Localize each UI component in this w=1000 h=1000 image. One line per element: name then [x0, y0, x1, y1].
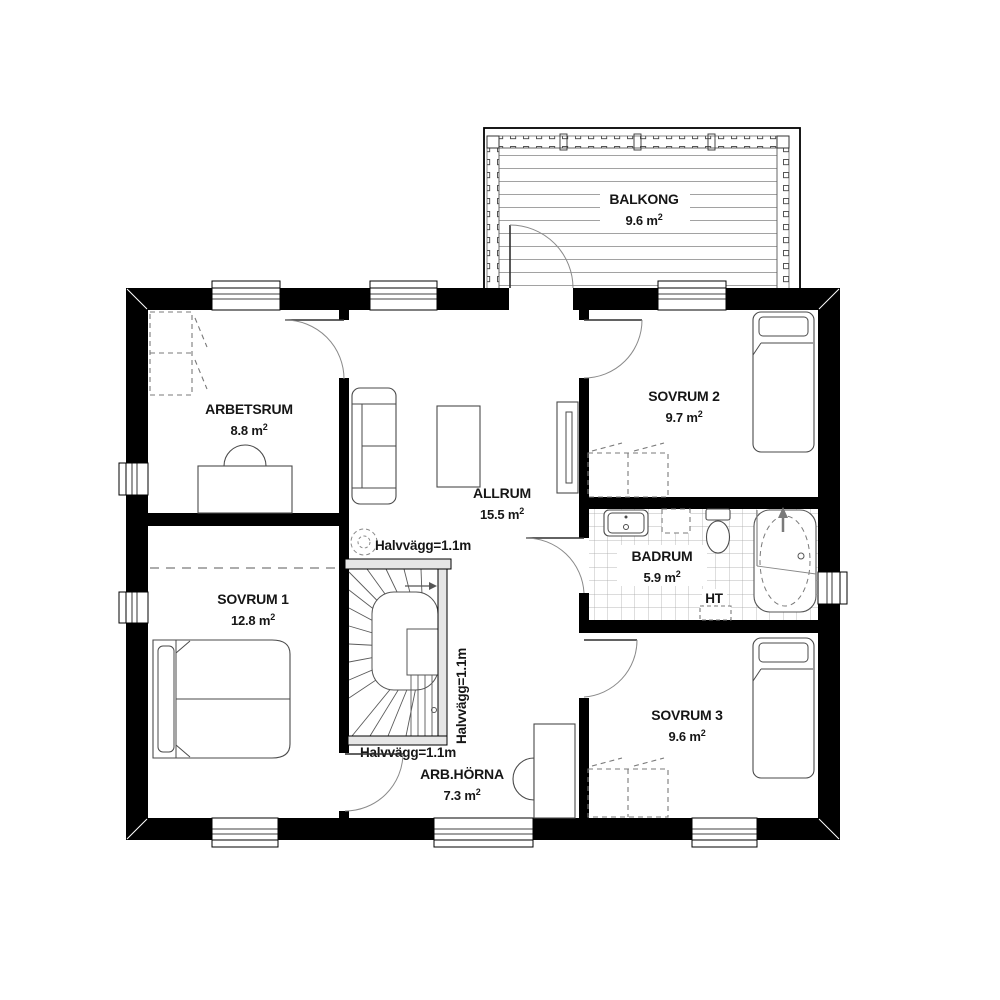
- room-label-allrum: ALLRUM: [473, 485, 531, 501]
- door-sovrum1: [345, 754, 403, 811]
- balcony-railing-right: [777, 148, 789, 290]
- door-badrum: [526, 538, 584, 593]
- toilet: [706, 509, 730, 553]
- tv-bench: [557, 402, 578, 493]
- area-label-sovrum2: 9.7 m2: [665, 409, 702, 425]
- area-label-sovrum1: 12.8 m2: [231, 612, 275, 628]
- wall-arbetsrum-allrum: [339, 378, 349, 513]
- exterior-wall-right: [818, 288, 840, 840]
- stairs: Halvvägg=1.1m Halvvägg=1.1m Halvvägg=1.1…: [345, 529, 471, 760]
- door-sovrum3: [584, 640, 637, 697]
- area-label-balkong: 9.6 m2: [625, 212, 662, 228]
- window-sovrum3-bottom: [692, 818, 757, 847]
- area-label-badrum: 5.9 m2: [643, 569, 680, 585]
- stair-landing: [407, 629, 438, 675]
- wall-stub: [339, 310, 349, 320]
- window-sovrum2-top: [658, 281, 726, 310]
- area-label-arbhorna: 7.3 m2: [443, 787, 480, 803]
- half-wall-bottom: [348, 736, 447, 745]
- arbetsrum: ARBETSRUM 8.8 m2: [150, 312, 293, 513]
- door-arbetsrum: [285, 320, 344, 379]
- desk-arbetsrum: [198, 445, 292, 513]
- wall-stub: [579, 310, 589, 320]
- room-label-badrum: BADRUM: [631, 548, 692, 564]
- washing-machine: [662, 509, 690, 533]
- bathtub: [754, 507, 816, 612]
- floor-plan-drawing: BALKONG 9.6 m2: [0, 0, 1000, 1000]
- window-sovrum1-left: [119, 592, 148, 623]
- wardrobe-sovrum3: [588, 758, 668, 817]
- allrum: ALLRUM 15.5 m2: [352, 388, 578, 522]
- balcony-railing-top: [499, 136, 777, 148]
- wall-badrum-sovrum3: [579, 620, 818, 633]
- sink: [604, 510, 648, 536]
- half-wall-top: [345, 559, 451, 569]
- area-label-arbetsrum: 8.8 m2: [230, 422, 267, 438]
- area-label-allrum: 15.5 m2: [480, 506, 524, 522]
- room-label-sovrum1: SOVRUM 1: [217, 591, 289, 607]
- towel-dryer: HT: [700, 589, 731, 620]
- window-arbhorna-bottom: [434, 818, 533, 847]
- window-badrum-right: [818, 572, 847, 604]
- sofa: [352, 388, 396, 504]
- room-label-sovrum3: SOVRUM 3: [651, 707, 723, 723]
- bed-sovrum2: [753, 312, 814, 452]
- sovrum2: SOVRUM 2 9.7 m2: [588, 312, 814, 497]
- ht-label: HT: [705, 591, 724, 606]
- exterior-wall-left: [126, 288, 148, 840]
- half-wall-label-bottom: Halvvägg=1.1m: [360, 745, 456, 760]
- bathroom: HT BADRUM 5.9 m2: [589, 507, 818, 620]
- wall-stub: [339, 811, 349, 818]
- door-sovrum2: [584, 320, 642, 378]
- area-label-sovrum3: 9.6 m2: [668, 728, 705, 744]
- half-wall-label-top: Halvvägg=1.1m: [375, 538, 471, 553]
- room-label-arbetsrum: ARBETSRUM: [205, 401, 293, 417]
- room-label-sovrum2: SOVRUM 2: [648, 388, 720, 404]
- office-chair: [224, 445, 266, 466]
- floor-plan: BALKONG 9.6 m2: [0, 0, 1000, 1000]
- sovrum3: SOVRUM 3 9.6 m2: [588, 638, 814, 817]
- balcony-railing-left: [487, 148, 499, 290]
- window-arbetsrum-top: [212, 281, 280, 310]
- window-arbetsrum-left: [119, 463, 148, 495]
- pole-symbol: [351, 529, 377, 555]
- stair-arrow-head: [429, 582, 437, 590]
- room-label-arbhorna: ARB.HÖRNA: [420, 766, 504, 782]
- coffee-table: [437, 406, 480, 487]
- half-wall-right: [438, 569, 447, 736]
- pole-symbol-inner: [358, 536, 370, 548]
- office-chair: [513, 758, 534, 800]
- desk-arbhorna: [513, 724, 575, 818]
- window-allrum-top: [370, 281, 437, 310]
- room-label-balkong: BALKONG: [609, 191, 679, 207]
- balcony: BALKONG 9.6 m2: [484, 128, 800, 292]
- wall-sovrum1-arbetsrum: [126, 513, 349, 526]
- wardrobe-sovrum2: [588, 443, 668, 497]
- bed-sovrum1: [153, 640, 290, 758]
- balcony-door-opening: [509, 288, 573, 310]
- wardrobe-arbetsrum: [150, 312, 207, 395]
- bed-sovrum3: [753, 638, 814, 778]
- sovrum1: SOVRUM 1 12.8 m2: [150, 568, 339, 758]
- half-wall-label-right: Halvvägg=1.1m: [454, 648, 469, 744]
- window-sovrum1-bottom: [212, 818, 278, 847]
- wall-sovrum2-badrum: [579, 497, 818, 509]
